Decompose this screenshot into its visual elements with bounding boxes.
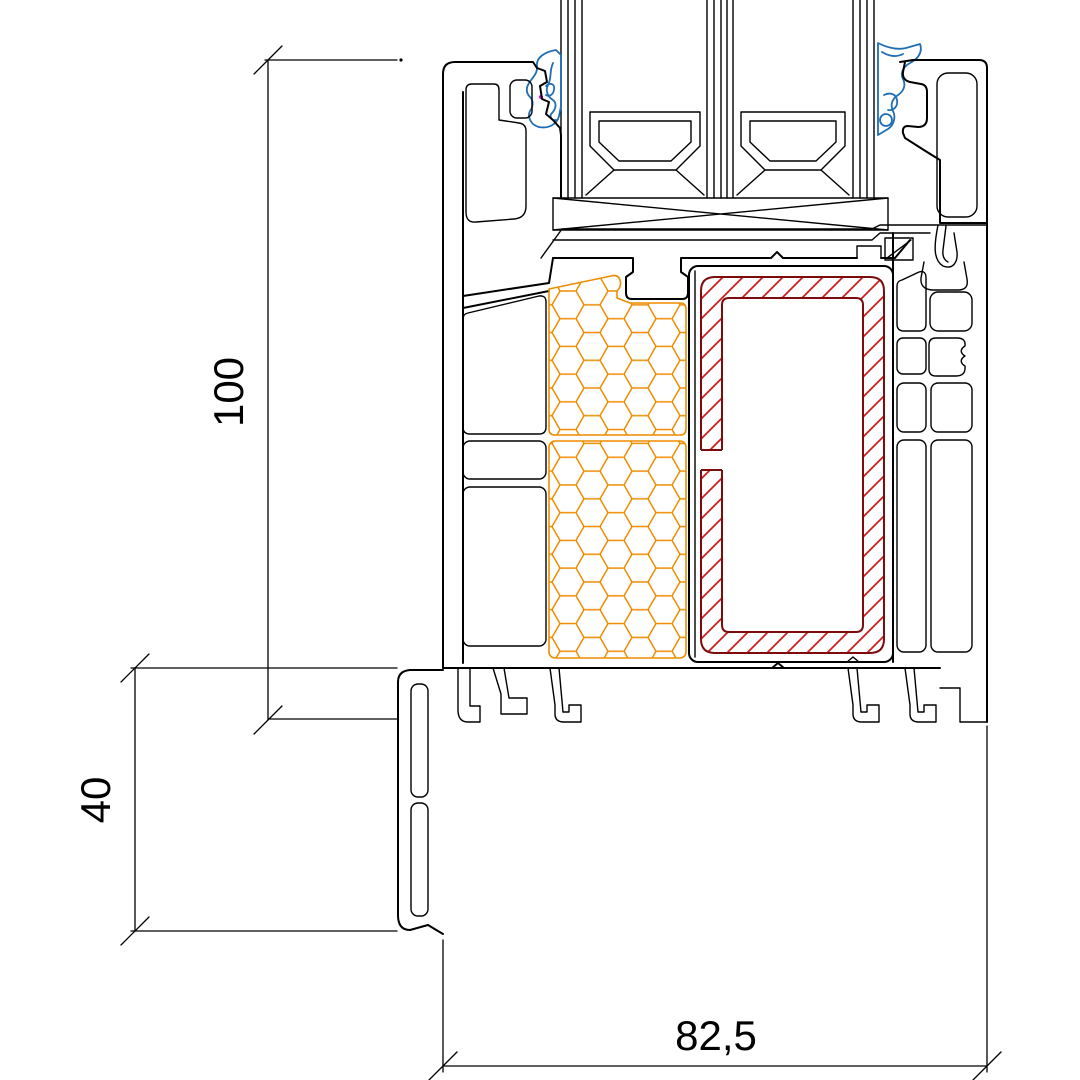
bottom-feet [443, 663, 987, 722]
profile-section-drawing: 100 40 82,5 [0, 0, 1080, 1080]
gasket-right [878, 43, 921, 135]
glazing-bead-right [900, 60, 987, 722]
sill-extension [398, 670, 443, 934]
steel-reinforcement [689, 266, 893, 662]
cad-drawing-canvas: 100 40 82,5 [0, 0, 1080, 1080]
dimension-82-5: 82,5 [429, 726, 1001, 1080]
dimension-40-label: 40 [72, 777, 119, 824]
glazing-spacer-left [586, 112, 704, 195]
frame-left-profile [443, 62, 561, 668]
dimension-100: 100 [205, 46, 403, 734]
dimension-100-label: 100 [205, 357, 252, 427]
dimension-40: 40 [72, 654, 397, 945]
setting-block [553, 198, 888, 230]
right-chambers [893, 233, 972, 662]
glass-unit [541, 0, 986, 258]
glazing-spacer-right [737, 112, 849, 195]
dimension-82-5-label: 82,5 [675, 1012, 757, 1059]
insulation-foam [549, 276, 686, 659]
